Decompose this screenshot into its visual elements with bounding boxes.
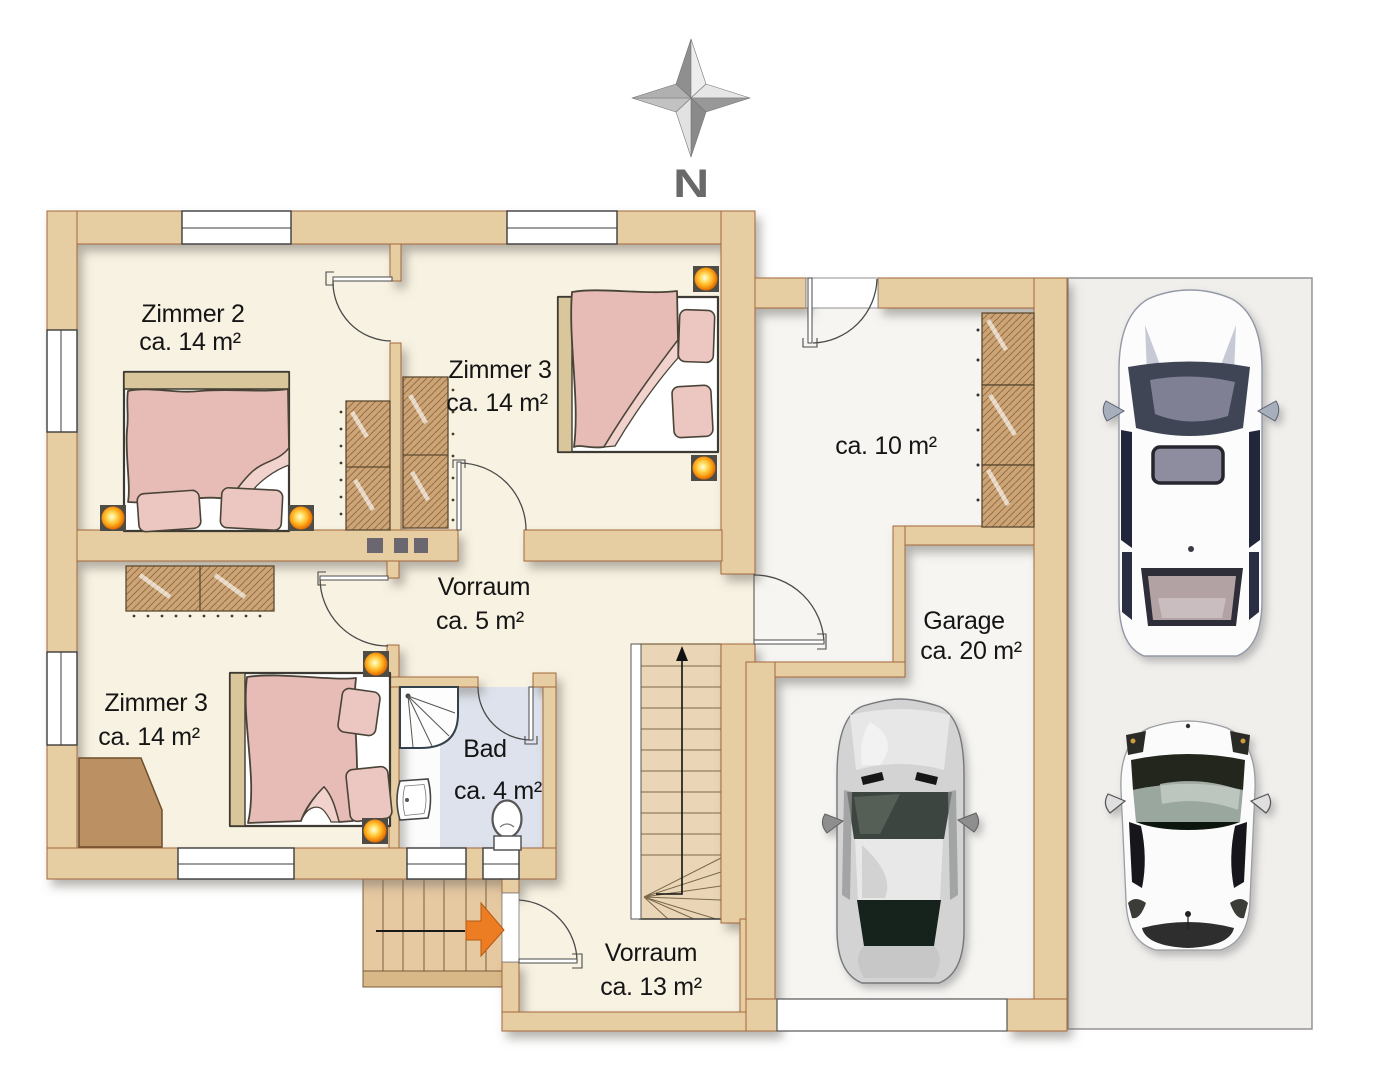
- svg-text:N: N: [673, 161, 709, 206]
- svg-text:ca. 5 m²: ca. 5 m²: [436, 607, 524, 635]
- svg-text:ca. 14 m²: ca. 14 m²: [98, 723, 200, 751]
- svg-text:ca. 10 m²: ca. 10 m²: [835, 432, 937, 460]
- svg-text:Bad: Bad: [463, 735, 507, 763]
- svg-text:ca. 4 m²: ca. 4 m²: [454, 777, 542, 805]
- svg-text:Zimmer 3: Zimmer 3: [104, 689, 207, 717]
- svg-text:ca. 13 m²: ca. 13 m²: [600, 973, 702, 1001]
- svg-text:Garage: Garage: [923, 607, 1005, 635]
- svg-text:Zimmer 2: Zimmer 2: [141, 300, 244, 328]
- svg-text:ca. 20 m²: ca. 20 m²: [920, 637, 1022, 665]
- svg-text:Vorraum: Vorraum: [438, 573, 530, 601]
- svg-text:Vorraum: Vorraum: [605, 939, 697, 967]
- svg-text:ca. 14 m²: ca. 14 m²: [446, 389, 548, 417]
- svg-text:Zimmer 3: Zimmer 3: [448, 356, 551, 384]
- svg-text:ca. 14 m²: ca. 14 m²: [139, 328, 241, 356]
